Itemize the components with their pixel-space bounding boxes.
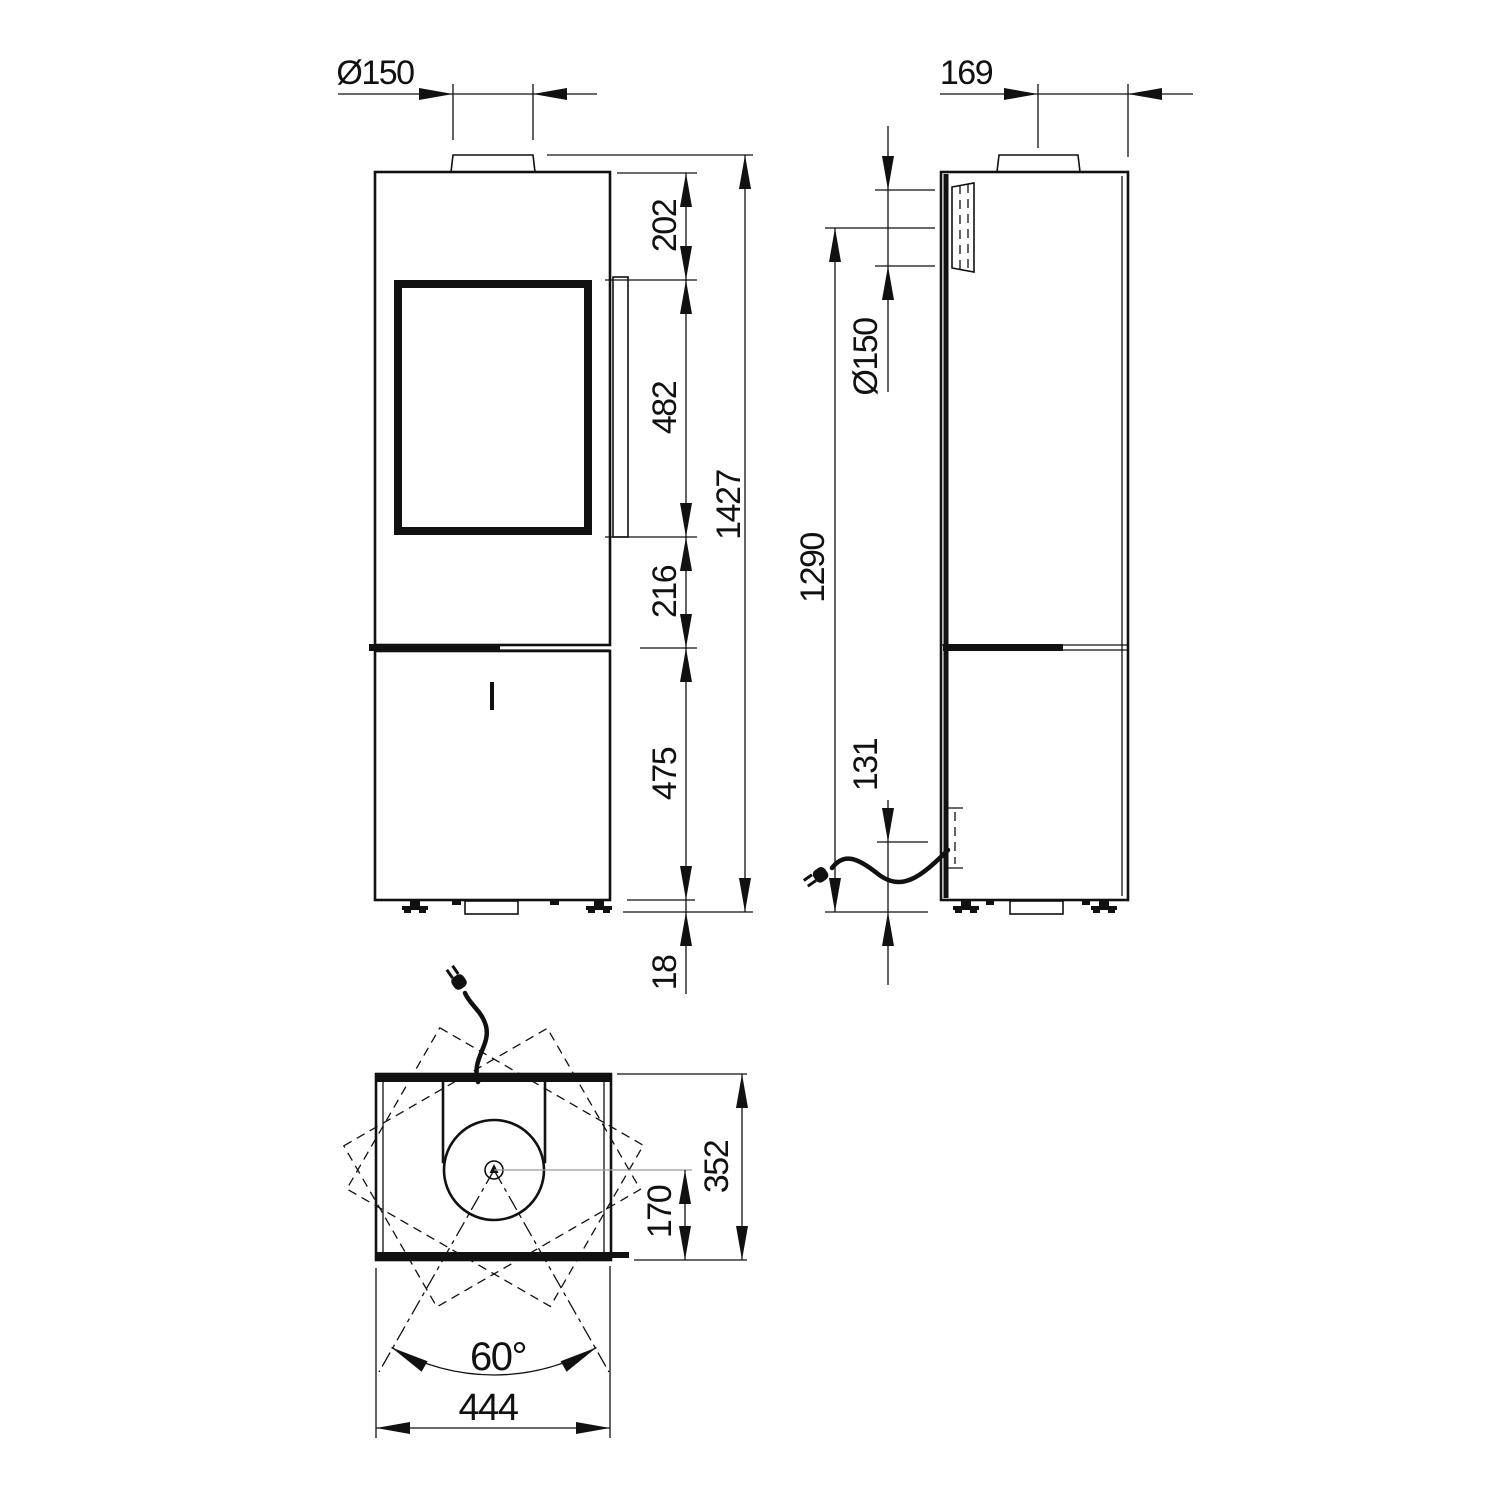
top-back-edge — [376, 1074, 611, 1082]
front-door-handle-strip — [613, 277, 628, 537]
top-view — [344, 964, 644, 1372]
top-swivel-outline-left — [344, 1028, 641, 1307]
dim-label-width: 444 — [459, 1387, 519, 1429]
front-flue-stub — [451, 155, 535, 172]
dim-label-door-height: 482 — [646, 381, 684, 434]
top-door-handle — [611, 1252, 629, 1258]
side-flue-stub — [997, 155, 1080, 172]
side-body — [941, 172, 1128, 900]
arrow — [419, 88, 453, 100]
technical-drawing: Ø150 202 482 216 475 18 1427 — [0, 0, 1500, 1500]
dim-label-feet-height: 18 — [646, 955, 684, 990]
front-door-window — [398, 284, 588, 531]
side-power-cord — [832, 850, 948, 882]
front-view — [369, 155, 628, 914]
side-power-plug — [803, 865, 831, 890]
side-dimensions: 169 Ø150 1290 131 — [794, 54, 1193, 985]
top-center-marker — [490, 1164, 499, 1173]
front-bottom-recess — [465, 901, 518, 914]
side-view — [803, 155, 1128, 914]
dim-label-base-height: 475 — [646, 747, 684, 800]
side-split-shadow — [943, 644, 1063, 651]
front-foot-left — [402, 901, 428, 913]
dim-label-rear-flue-diameter: Ø150 — [847, 318, 885, 396]
stove-dimension-drawing: Ø150 202 482 216 475 18 1427 — [0, 0, 1500, 1500]
top-power-cord — [465, 993, 487, 1082]
dim-label-flue-center-to-front: 170 — [641, 1185, 679, 1238]
side-rear-flue-collar — [952, 183, 974, 272]
dim-label-total-height: 1427 — [710, 470, 748, 540]
dim-label-rear-flue-height: 1290 — [794, 533, 832, 603]
side-foot-right — [1091, 901, 1117, 913]
dim-label-front-flue-diameter: Ø150 — [336, 54, 414, 92]
front-bottom-fixing-right — [550, 901, 559, 905]
dim-label-swivel-angle: 60° — [470, 1335, 526, 1379]
side-bottom-recess — [1010, 901, 1063, 914]
top-front-edge — [376, 1252, 611, 1260]
dim-label-flue-offset: 169 — [940, 54, 993, 92]
front-upper-body — [375, 172, 610, 645]
dim-label-top-to-door: 202 — [646, 199, 684, 252]
dim-label-depth: 352 — [698, 1140, 736, 1193]
arrow — [533, 88, 567, 100]
side-foot-left — [953, 901, 979, 913]
top-power-plug — [444, 964, 469, 992]
dim-label-door-to-base: 216 — [646, 565, 684, 618]
side-power-inlet — [946, 808, 963, 868]
front-bottom-fixing-left — [452, 901, 461, 905]
front-foot-right — [586, 901, 612, 913]
dim-label-power-inlet-height: 131 — [847, 738, 885, 791]
